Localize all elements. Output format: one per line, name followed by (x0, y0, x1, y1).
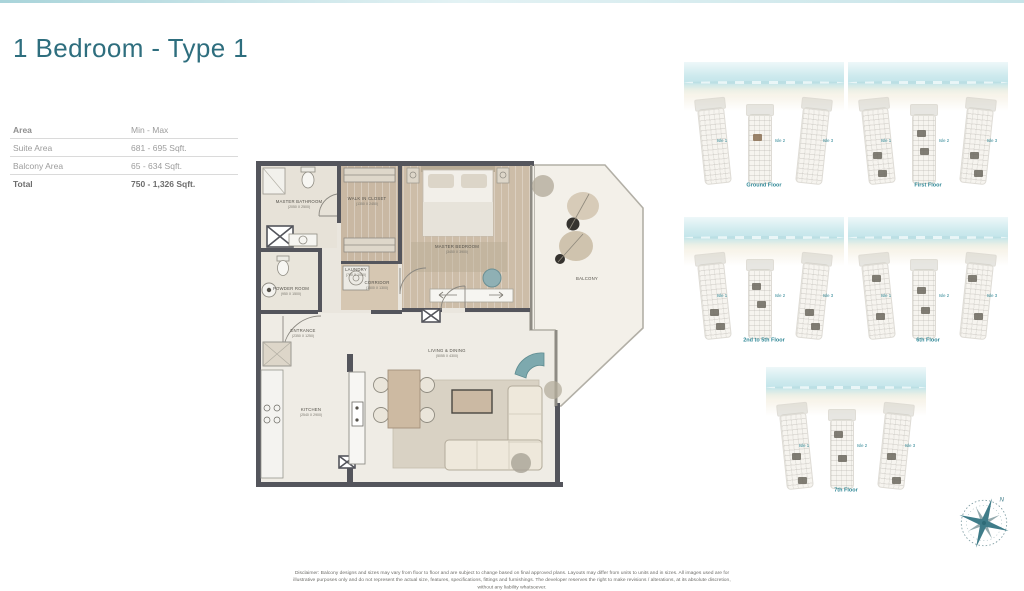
isle-1-label: Isle 1 (712, 138, 731, 143)
room-label-powder-room: POWDER ROOM (273, 286, 309, 291)
balcony-area-label: Balcony Area (10, 161, 131, 171)
building-cluster-mid (912, 269, 936, 339)
disclaimer-section: Disclaimer: Balcony designs and sizes ma… (0, 560, 1024, 578)
room-dims-kitchen: (2540 X 2900) (300, 413, 322, 417)
key-plan-7th-floor: Isle 1 Isle 2 Isle 3 7th Floor (766, 367, 926, 505)
powder-floor (261, 252, 318, 310)
room-dims-corridor: (1500 X 1300) (366, 286, 388, 290)
building-cluster-left (697, 107, 732, 185)
room-label-master-bathroom: MASTER BATHROOM (276, 199, 323, 204)
isle-1-label: Isle 1 (794, 443, 813, 448)
water-band (684, 62, 844, 95)
isle-3-label: Isle 3 (900, 443, 919, 448)
highlighted-unit (920, 148, 929, 155)
highlighted-unit (753, 134, 762, 141)
highlighted-unit (710, 309, 719, 316)
floor-label: 2nd to 5th Floor (737, 337, 792, 343)
highlighted-unit (974, 313, 983, 320)
highlighted-unit (974, 170, 983, 177)
isle-1-label: Isle 1 (712, 293, 731, 298)
room-label-balcony: BALCONY (576, 276, 598, 281)
highlighted-unit (716, 323, 725, 330)
isle-3-label: Isle 3 (818, 138, 837, 143)
compass-north-label: N (1000, 496, 1005, 503)
isle-2-label: Isle 2 (934, 293, 953, 298)
highlighted-unit (811, 323, 820, 330)
building-cluster-left (861, 262, 896, 340)
highlighted-unit (878, 170, 887, 177)
suite-area-label: Suite Area (10, 143, 131, 153)
floor-label: Ground Floor (737, 182, 792, 188)
total-area-label: Total (10, 179, 131, 189)
area-header-value: Min - Max (131, 125, 238, 135)
room-label-kitchen: KITCHEN (301, 407, 321, 412)
table-row: Suite Area 681 - 695 Sqft. (10, 139, 238, 157)
room-dims-powder-room: (950 X 1500) (281, 292, 301, 296)
building-cluster-mid (830, 419, 854, 489)
total-area-value: 750 - 1,326 Sqft. (131, 179, 238, 189)
highlighted-unit (970, 152, 979, 159)
floor-plan: MASTER BATHROOM (2050 X 2500) WALK IN CL… (253, 158, 648, 490)
top-accent-bar (0, 0, 1024, 3)
building-cluster-right (795, 107, 830, 185)
room-dims-master-bathroom: (2050 X 2500) (288, 205, 310, 209)
building-cluster-mid (748, 114, 772, 184)
highlighted-unit (834, 431, 843, 438)
room-label-walk-in-closet: WALK IN CLOSET (348, 196, 387, 201)
key-plan-6th-floor: Isle 1 Isle 2 Isle 3 6th Floor (848, 217, 1008, 355)
isle-1-label: Isle 1 (876, 293, 895, 298)
table-row: Balcony Area 65 - 634 Sqft. (10, 157, 238, 175)
building-cluster-left (779, 412, 814, 490)
isle-2-label: Isle 2 (770, 138, 789, 143)
highlighted-unit (752, 283, 761, 290)
room-label-laundry: LAUNDRY (345, 267, 367, 272)
highlighted-unit (757, 301, 766, 308)
isle-3-label: Isle 3 (818, 293, 837, 298)
highlighted-unit (805, 309, 814, 316)
isle-1-label: Isle 1 (876, 138, 895, 143)
room-dims-master-bedroom: (3450 X 3900) (446, 250, 468, 254)
isle-2-label: Isle 2 (852, 443, 871, 448)
highlighted-unit (921, 307, 930, 314)
highlighted-unit (838, 455, 847, 462)
isle-2-label: Isle 2 (934, 138, 953, 143)
highlighted-unit (968, 275, 977, 282)
compass-icon: N (953, 492, 1015, 554)
floor-label: 6th Floor (901, 337, 956, 343)
highlighted-unit (917, 130, 926, 137)
building-cluster-right (959, 262, 994, 340)
key-plan-ground-floor: Isle 1 Isle 2 Isle 3 Ground Floor (684, 62, 844, 200)
isle-2-label: Isle 2 (770, 293, 789, 298)
highlighted-unit (887, 453, 896, 460)
room-dims-living-dining: (5055 X 4300) (436, 354, 458, 358)
highlighted-unit (792, 453, 801, 460)
building-cluster-left (697, 262, 732, 340)
isle-3-label: Isle 3 (982, 293, 1001, 298)
key-plan-first-floor: Isle 1 Isle 2 Isle 3 First Floor (848, 62, 1008, 200)
page-title: 1 Bedroom - Type 1 (13, 33, 248, 64)
room-dims-walk-in-closet: (1350 X 2450) (356, 202, 378, 206)
room-label-living-dining: LIVING & DINING (428, 348, 466, 353)
area-table: Area Min - Max Suite Area 681 - 695 Sqft… (10, 121, 238, 192)
water-band (848, 217, 1008, 250)
highlighted-unit (876, 313, 885, 320)
suite-area-value: 681 - 695 Sqft. (131, 143, 238, 153)
floor-label: First Floor (901, 182, 956, 188)
highlighted-unit (872, 275, 881, 282)
highlighted-unit (917, 287, 926, 294)
floor-label: 7th Floor (819, 487, 874, 493)
table-row-total: Total 750 - 1,326 Sqft. (10, 175, 238, 192)
room-dims-laundry: (700 X 1050) (346, 273, 366, 277)
water-band (848, 62, 1008, 95)
entrance-wardrobe (263, 342, 291, 366)
highlighted-unit (892, 477, 901, 484)
highlighted-unit (798, 477, 807, 484)
water-band (684, 217, 844, 250)
isle-3-label: Isle 3 (982, 138, 1001, 143)
balcony-area-value: 65 - 634 Sqft. (131, 161, 238, 171)
room-label-master-bedroom: MASTER BEDROOM (435, 244, 479, 249)
water-band (766, 367, 926, 400)
room-dims-entrance: (2350 X 1250) (292, 334, 314, 338)
key-plan-2nd-to-5th-floor: Isle 1 Isle 2 Isle 3 2nd to 5th Floor (684, 217, 844, 355)
room-label-entrance: ENTRANCE (290, 328, 315, 333)
room-label-corridor: CORRIDOR (365, 280, 390, 285)
highlighted-unit (873, 152, 882, 159)
area-table-header: Area Min - Max (10, 121, 238, 139)
area-header-label: Area (10, 125, 131, 135)
